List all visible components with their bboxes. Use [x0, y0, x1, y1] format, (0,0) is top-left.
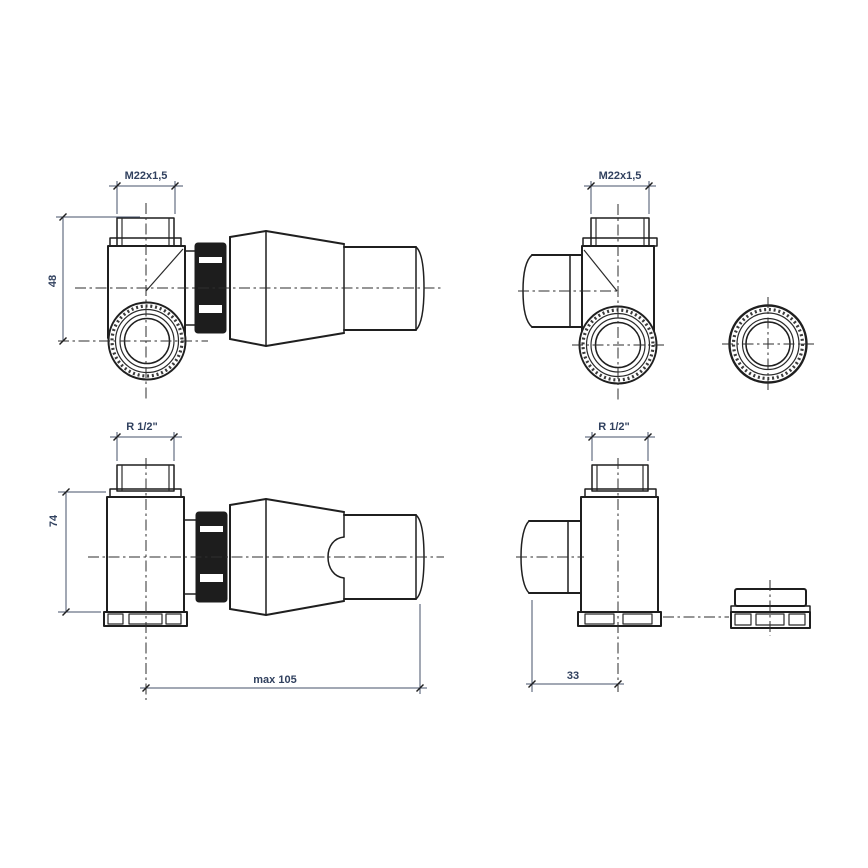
dim-max105: max 105: [140, 604, 427, 694]
view-side-head-left: M22x1,5: [518, 170, 664, 400]
dim-label-74: 74: [48, 514, 60, 527]
head-back-cap: [523, 255, 582, 327]
technical-drawing: M22x1,5 48: [0, 0, 868, 868]
view-side-head-right: M22x1,5 48: [47, 170, 444, 399]
dim-label-m22-right: M22x1,5: [599, 170, 642, 182]
threaded-stub: [583, 218, 657, 246]
dim-label-max105: max 105: [253, 674, 296, 686]
dim-74: 74: [48, 489, 106, 616]
dim-label-33: 33: [567, 670, 579, 682]
dim-label-48: 48: [47, 275, 59, 287]
dim-m22-right: M22x1,5: [584, 170, 656, 214]
dim-label-r12-right: R 1/2": [598, 421, 630, 433]
ring-nut-front-part: [722, 297, 814, 392]
dim-r12-right: R 1/2": [585, 421, 655, 461]
dim-label-m22-left: M22x1,5: [125, 170, 168, 182]
drawing-canvas: M22x1,5 48: [0, 0, 868, 868]
valve-body: [578, 497, 661, 626]
valve-body: [104, 497, 196, 626]
dim-r12-left: R 1/2": [110, 421, 182, 461]
view-front-head-left: R 1/2" 33: [516, 421, 729, 692]
threaded-stub: [585, 465, 656, 497]
dim-label-r12-left: R 1/2": [126, 421, 158, 433]
ring-nut-side-part: [731, 580, 810, 636]
view-front-head-right: R 1/2" 74 max 105: [48, 421, 444, 700]
